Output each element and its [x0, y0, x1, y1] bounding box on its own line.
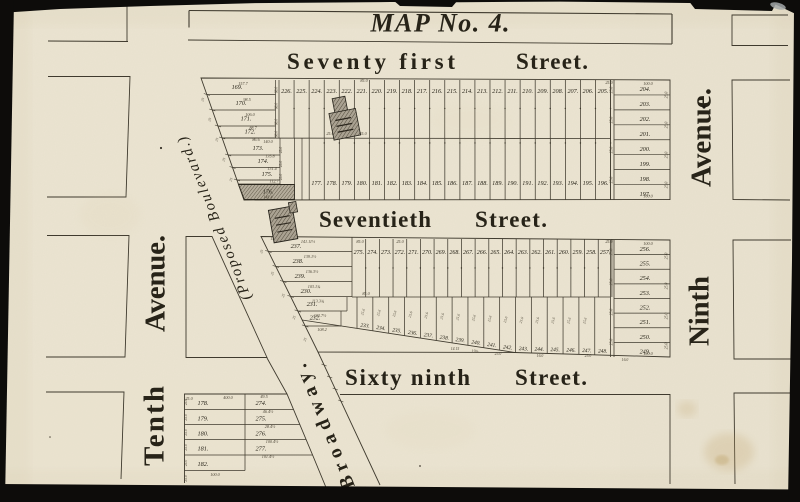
svg-text:19¼: 19¼: [472, 350, 479, 354]
svg-text:270.: 270.: [422, 250, 433, 256]
svg-text:25.0: 25.0: [279, 161, 283, 167]
svg-text:212.: 212.: [492, 88, 503, 95]
svg-text:Street.: Street.: [516, 49, 588, 74]
svg-text:106.0: 106.0: [245, 112, 255, 117]
svg-text:25.0: 25.0: [610, 339, 614, 346]
svg-text:239.: 239.: [295, 273, 306, 280]
svg-text:157.7: 157.7: [238, 81, 248, 86]
svg-text:49.5: 49.5: [260, 394, 267, 399]
svg-text:25.0: 25.0: [184, 399, 188, 405]
svg-text:135.8: 135.8: [265, 154, 275, 159]
svg-text:14.15: 14.15: [451, 347, 460, 351]
svg-text:101.4½: 101.4½: [262, 454, 275, 459]
svg-text:250.: 250.: [640, 334, 651, 341]
svg-text:266.: 266.: [477, 250, 488, 256]
svg-text:263.: 263.: [518, 250, 529, 256]
svg-text:243.: 243.: [519, 346, 529, 352]
svg-text:215.: 215.: [447, 88, 458, 95]
svg-text:Seventieth: Seventieth: [319, 207, 431, 232]
svg-text:Avenue.: Avenue.: [140, 235, 172, 332]
svg-text:173.: 173.: [253, 145, 264, 152]
svg-text:100.0: 100.0: [643, 241, 653, 246]
svg-text:140.0: 140.0: [263, 139, 273, 144]
svg-text:248.: 248.: [598, 348, 608, 354]
svg-text:25.0: 25.0: [585, 354, 592, 358]
svg-text:182.: 182.: [387, 180, 398, 187]
svg-text:Tenth: Tenth: [139, 386, 171, 466]
svg-text:190.: 190.: [507, 180, 518, 187]
svg-text:205.: 205.: [598, 88, 609, 95]
svg-text:108.2: 108.2: [317, 327, 326, 332]
svg-text:245.: 245.: [550, 347, 560, 353]
svg-text:274.: 274.: [367, 249, 378, 256]
svg-text:195.: 195.: [583, 180, 594, 187]
svg-text:177.: 177.: [311, 180, 322, 187]
svg-text:275.: 275.: [354, 250, 365, 256]
svg-text:186.: 186.: [447, 180, 458, 187]
svg-text:180.: 180.: [357, 180, 368, 187]
svg-text:25.0: 25.0: [610, 117, 614, 124]
svg-text:174.: 174.: [258, 158, 269, 165]
svg-text:100.0: 100.0: [643, 351, 653, 356]
svg-text:193.: 193.: [552, 180, 563, 187]
svg-text:276.: 276.: [255, 431, 266, 438]
svg-text:180.: 180.: [197, 431, 208, 438]
svg-text:25.0: 25.0: [610, 279, 614, 286]
svg-text:244.: 244.: [534, 347, 544, 353]
svg-text:267.: 267.: [463, 250, 474, 256]
svg-text:25.0: 25.0: [665, 92, 669, 99]
svg-text:141.11½: 141.11½: [301, 239, 316, 244]
svg-text:181.: 181.: [197, 446, 208, 453]
svg-text:Ninth: Ninth: [684, 276, 716, 346]
svg-text:239.: 239.: [455, 337, 465, 344]
svg-text:183.: 183.: [402, 180, 413, 187]
svg-text:85.0: 85.0: [362, 291, 370, 296]
svg-text:269.: 269.: [436, 250, 447, 256]
svg-text:222.: 222.: [341, 88, 352, 95]
svg-text:88.7: 88.7: [249, 126, 257, 131]
svg-text:139.1½: 139.1½: [304, 254, 317, 259]
svg-text:178.: 178.: [326, 180, 337, 187]
svg-text:184.: 184.: [417, 180, 428, 187]
svg-text:238.: 238.: [293, 258, 304, 265]
svg-text:237.: 237.: [423, 332, 433, 339]
svg-text:88.0: 88.0: [275, 87, 279, 93]
svg-text:199.: 199.: [640, 161, 651, 168]
svg-text:100.4½: 100.4½: [266, 439, 279, 444]
svg-text:196.: 196.: [598, 180, 609, 187]
svg-text:Street.: Street.: [475, 207, 547, 232]
svg-text:268.: 268.: [449, 250, 460, 256]
svg-text:213.: 213.: [477, 88, 488, 95]
svg-text:206.: 206.: [583, 88, 594, 95]
svg-text:251.: 251.: [640, 319, 651, 326]
svg-text:211.: 211.: [507, 88, 517, 95]
svg-text:272.: 272.: [395, 250, 406, 256]
svg-text:25.0: 25.0: [665, 253, 669, 260]
svg-text:25.0: 25.0: [396, 239, 404, 244]
svg-text:103.1¾: 103.1¾: [308, 284, 321, 289]
svg-text:25.0: 25.0: [495, 352, 502, 356]
svg-text:141.4: 141.4: [264, 195, 273, 200]
svg-text:220.: 220.: [372, 88, 383, 95]
svg-text:181.: 181.: [372, 180, 383, 187]
svg-text:28.4½: 28.4½: [265, 424, 276, 429]
svg-text:256.: 256.: [640, 246, 651, 253]
svg-text:25.0: 25.0: [665, 343, 669, 350]
svg-text:275.: 275.: [255, 416, 266, 423]
svg-text:238.: 238.: [439, 335, 449, 342]
svg-text:223.: 223.: [326, 88, 337, 95]
svg-text:25.0: 25.0: [184, 414, 188, 420]
svg-text:25.0: 25.0: [665, 152, 669, 159]
svg-text:265.: 265.: [490, 250, 501, 256]
svg-text:25.0: 25.0: [610, 249, 614, 256]
svg-text:100.0: 100.0: [210, 472, 220, 477]
svg-text:98.5: 98.5: [243, 97, 250, 102]
svg-text:189.: 189.: [492, 180, 503, 187]
svg-text:253.: 253.: [640, 290, 651, 297]
svg-text:237.: 237.: [291, 243, 302, 250]
svg-text:25.0: 25.0: [610, 87, 614, 94]
svg-text:113.3¾: 113.3¾: [312, 299, 325, 304]
svg-text:131.4: 131.4: [267, 166, 276, 171]
svg-text:25.0: 25.0: [279, 147, 283, 153]
svg-text:236.: 236.: [408, 330, 418, 337]
svg-text:204.: 204.: [640, 86, 651, 93]
svg-text:271.: 271.: [408, 250, 419, 256]
svg-text:25.0: 25.0: [665, 182, 669, 189]
svg-text:217.: 217.: [417, 88, 428, 95]
svg-text:277.: 277.: [255, 446, 266, 453]
svg-text:25.0: 25.0: [665, 122, 669, 129]
svg-text:182.: 182.: [197, 461, 208, 468]
svg-text:188.: 188.: [477, 180, 488, 187]
svg-text:25.0: 25.0: [605, 80, 613, 85]
svg-text:179.: 179.: [341, 180, 352, 187]
svg-text:221.: 221.: [356, 88, 367, 95]
svg-text:25.0: 25.0: [184, 475, 188, 481]
svg-text:219.: 219.: [387, 88, 398, 95]
svg-text:252.: 252.: [640, 304, 651, 311]
svg-text:25.0: 25.0: [665, 313, 669, 320]
svg-text:200.: 200.: [640, 146, 651, 153]
svg-text:274.: 274.: [255, 400, 266, 407]
svg-text:246.: 246.: [566, 348, 576, 354]
svg-text:264.: 264.: [504, 249, 515, 256]
svg-text:25.0: 25.0: [610, 147, 614, 154]
svg-text:255.: 255.: [640, 261, 651, 268]
svg-text:Street.: Street.: [515, 365, 587, 390]
svg-text:202.: 202.: [640, 116, 651, 123]
svg-text:179.: 179.: [197, 416, 208, 423]
svg-text:233.: 233.: [360, 323, 370, 330]
svg-text:254.: 254.: [640, 275, 651, 282]
svg-text:88.0: 88.0: [275, 103, 279, 109]
svg-text:262.: 262.: [531, 250, 542, 256]
svg-text:400.0: 400.0: [223, 395, 233, 400]
svg-text:194.: 194.: [568, 180, 579, 187]
svg-text:25.0: 25.0: [279, 174, 283, 180]
svg-text:88.0: 88.0: [275, 131, 279, 137]
svg-text:225.: 225.: [296, 88, 307, 95]
svg-text:224.: 224.: [311, 88, 322, 95]
svg-text:100.0: 100.0: [643, 194, 653, 199]
svg-text:218.: 218.: [402, 88, 413, 95]
svg-text:242.: 242.: [503, 344, 513, 351]
svg-text:187.: 187.: [462, 180, 473, 187]
svg-text:230.: 230.: [301, 288, 312, 295]
svg-text:136.3½: 136.3½: [306, 269, 319, 274]
svg-text:259.: 259.: [572, 250, 583, 256]
svg-text:198.: 198.: [640, 176, 651, 183]
svg-text:210.: 210.: [522, 88, 533, 95]
svg-text:25.0: 25.0: [610, 309, 614, 316]
svg-text:86.6: 86.6: [252, 137, 260, 142]
svg-text:178.: 178.: [197, 400, 208, 407]
svg-text:203.: 203.: [640, 101, 651, 108]
svg-text:Sixty ninth: Sixty ninth: [345, 365, 470, 390]
svg-text:85.0: 85.0: [360, 78, 368, 83]
svg-text:209.: 209.: [537, 88, 548, 95]
svg-text:208.: 208.: [552, 88, 563, 95]
svg-text:234.: 234.: [376, 325, 386, 332]
svg-text:273.: 273.: [381, 250, 392, 256]
svg-text:214.: 214.: [462, 88, 473, 95]
svg-text:25.0: 25.0: [184, 460, 188, 466]
svg-text:185.: 185.: [432, 180, 443, 187]
svg-text:Avenue.: Avenue.: [686, 88, 718, 187]
svg-text:258.: 258.: [586, 250, 597, 256]
svg-text:207.: 207.: [567, 88, 578, 95]
svg-text:241.: 241.: [487, 342, 497, 349]
svg-text:100.0: 100.0: [643, 81, 653, 86]
svg-text:201.: 201.: [640, 131, 651, 138]
svg-text:85.0: 85.0: [356, 239, 364, 244]
svg-text:25.0: 25.0: [184, 429, 188, 435]
svg-text:240.: 240.: [471, 340, 481, 347]
svg-text:25.0: 25.0: [610, 177, 614, 184]
svg-text:112.7: 112.7: [269, 179, 279, 184]
svg-text:16.0: 16.0: [622, 358, 629, 362]
svg-text:25.0: 25.0: [665, 283, 669, 290]
svg-text:261.: 261.: [545, 250, 556, 256]
svg-text:16.0: 16.0: [537, 354, 544, 358]
svg-text:103.7½: 103.7½: [314, 313, 327, 318]
svg-text:25.0: 25.0: [605, 239, 613, 244]
svg-text:216.: 216.: [432, 88, 443, 95]
svg-text:191.: 191.: [522, 180, 533, 187]
svg-text:260.: 260.: [559, 250, 570, 256]
svg-text:226.: 226.: [281, 88, 292, 95]
svg-text:192.: 192.: [537, 180, 548, 187]
svg-text:235.: 235.: [392, 327, 402, 334]
svg-text:46.4½: 46.4½: [263, 409, 274, 414]
svg-text:25.0: 25.0: [184, 444, 188, 450]
svg-text:88.0: 88.0: [275, 119, 279, 125]
svg-text:175.: 175.: [262, 171, 273, 178]
